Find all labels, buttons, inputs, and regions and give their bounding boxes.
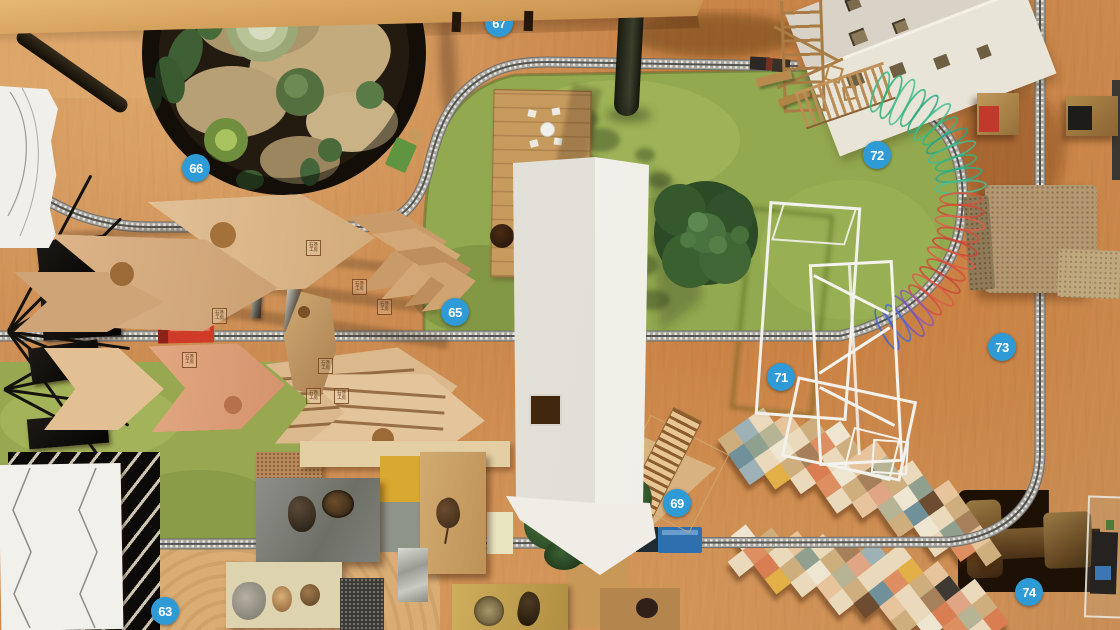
mini-chair: [527, 109, 536, 118]
marker-74[interactable]: 74: [1015, 578, 1043, 606]
marker-71[interactable]: 71: [767, 363, 795, 391]
sample-board-speckled: [340, 578, 384, 630]
ishinomaki-stamp: 石巻工房: [352, 279, 367, 295]
ishinomaki-stamp: 石巻工房: [377, 299, 392, 315]
marker-69[interactable]: 69: [663, 489, 691, 517]
marker-65[interactable]: 65: [441, 298, 469, 326]
blue-train-car: [636, 527, 702, 553]
tower-window: [529, 394, 562, 426]
case-object: [1090, 532, 1118, 595]
ishinomaki-stamp: 石巻工房: [306, 240, 321, 256]
paper-curve-lines: [0, 86, 58, 248]
marker-72[interactable]: 72: [863, 141, 891, 169]
house-window: [844, 0, 861, 12]
exhibition-table-photo: 636566676971727374 石巻工房石巻工房石巻工房石巻工房石巻工房石…: [0, 0, 1120, 630]
pinecone-specimen: [322, 490, 354, 518]
stair-shrub: [616, 478, 652, 520]
ishinomaki-stamp: 石巻工房: [334, 388, 349, 404]
stamp-black-face: [1068, 106, 1092, 130]
rock-specimen: [288, 496, 316, 532]
board-hole: [210, 222, 236, 248]
wireframe-top-face: [771, 203, 857, 245]
house-window: [976, 44, 992, 60]
ishinomaki-stamp: 石巻工房: [212, 308, 227, 324]
zigzag-lines: [0, 464, 122, 630]
ishinomaki-stamp: 石巻工房: [318, 358, 333, 374]
house-window: [848, 28, 868, 47]
mini-table: [540, 122, 555, 137]
stamp-red-face: [979, 106, 999, 132]
house-window: [933, 54, 950, 70]
cardboard-flap-right: [1057, 249, 1120, 299]
model-shrub: [544, 540, 584, 570]
leg-base-shadow: [606, 108, 652, 122]
ishinomaki-stamp: 石巻工房: [182, 352, 197, 368]
board-hole: [110, 262, 134, 286]
board-hole: [224, 396, 242, 414]
board-hole: [298, 306, 310, 318]
sample-board-gold: [452, 584, 568, 630]
ishinomaki-stamp: 石巻工房: [306, 388, 321, 404]
case-green-chip: [1106, 520, 1114, 530]
seed-specimen: [272, 586, 292, 612]
table-leg-center: [613, 15, 643, 116]
sample-board-small-yellow: [487, 512, 513, 554]
case-blue-chip: [1095, 566, 1111, 580]
marker-73[interactable]: 73: [988, 333, 1016, 361]
beam-clamp: [452, 12, 462, 32]
model-tree: [654, 181, 758, 288]
mini-chair: [552, 107, 561, 115]
house-roof-edge: [807, 0, 1025, 73]
marker-66[interactable]: 66: [182, 154, 210, 182]
walnut-specimen: [300, 584, 320, 606]
sample-board-zinc: [256, 478, 380, 562]
dark-specimen: [636, 598, 658, 618]
fossil-specimen: [474, 596, 504, 626]
sample-foil: [398, 548, 428, 602]
beam-clamp: [524, 11, 534, 31]
marker-63[interactable]: 63: [151, 597, 179, 625]
dark-bowl: [490, 224, 514, 248]
